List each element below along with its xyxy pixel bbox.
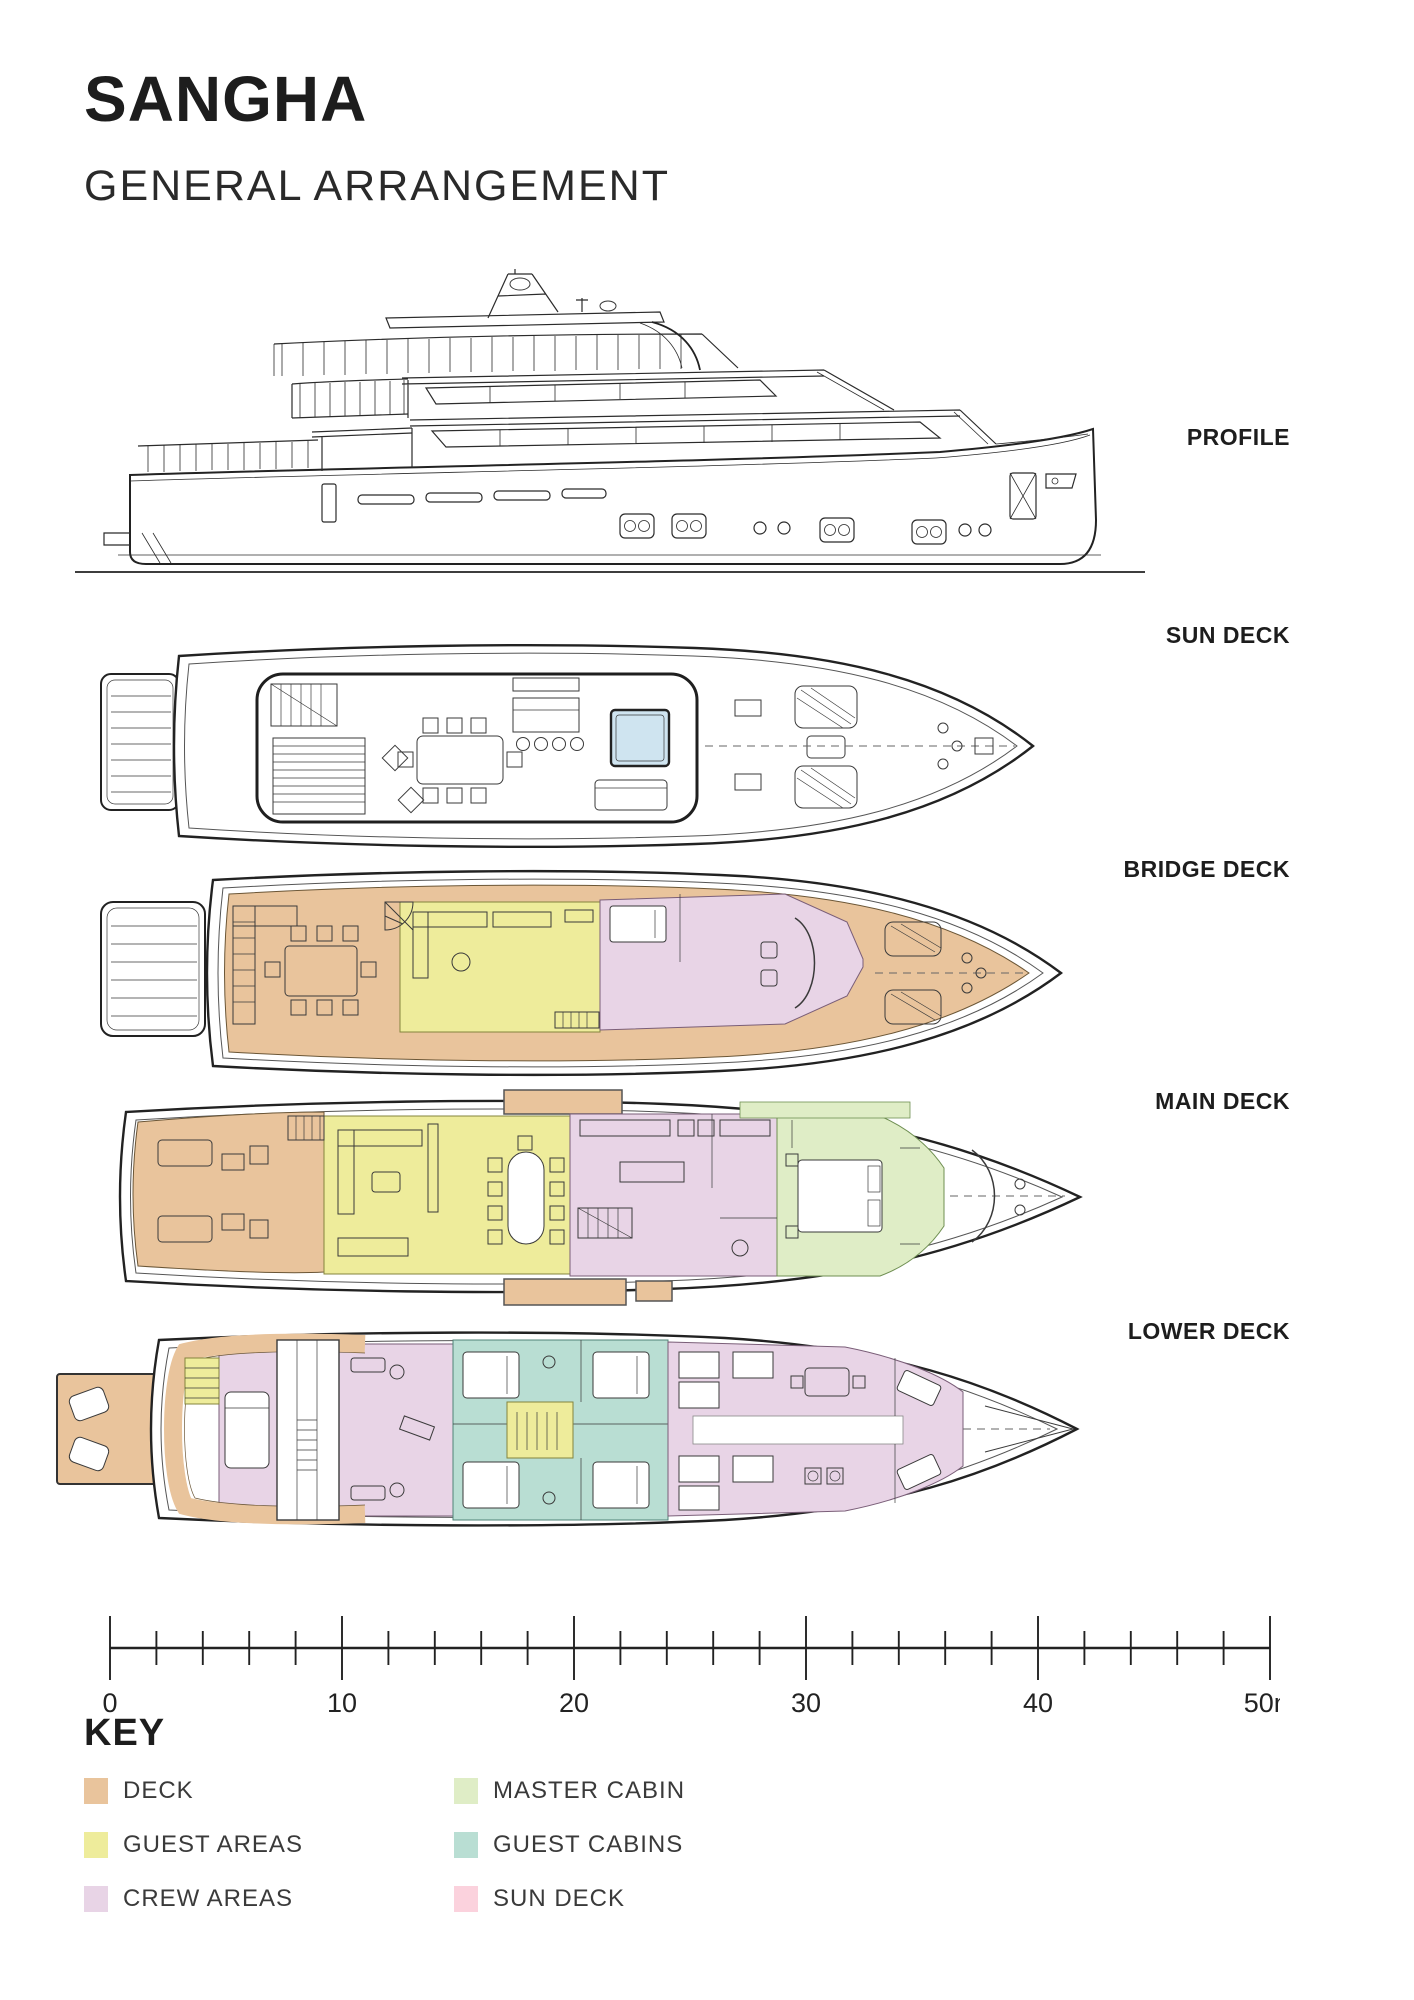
scale-tick-label: 20 [559, 1688, 589, 1718]
key-item-label: CREW AREAS [123, 1885, 293, 1913]
key-legend: DECK GUEST AREAS CREW AREAS MASTER CABIN… [84, 1778, 685, 1940]
main-deck-deck-zone [133, 1112, 324, 1273]
page-subtitle: GENERAL ARRANGEMENT [84, 162, 670, 211]
scale-ruler-svg: 01020304050m [100, 1608, 1280, 1723]
main-deck-crew-zone [570, 1114, 777, 1276]
key-swatch-deck [84, 1778, 108, 1804]
main-deck-view [80, 1088, 1095, 1323]
scale-tick-label: 30 [791, 1688, 821, 1718]
sun-deck-drawing [95, 640, 1085, 855]
bridge-deck-label: BRIDGE DECK [990, 856, 1290, 883]
key-item-label: SUN DECK [493, 1885, 625, 1913]
key-swatch-master-cabin [454, 1778, 478, 1804]
profile-label: PROFILE [990, 424, 1290, 451]
scale-tick-label: 10 [327, 1688, 357, 1718]
key-swatch-guest-cabins [454, 1832, 478, 1858]
lower-deck-drawing [45, 1328, 1110, 1568]
key-item-master-cabin: MASTER CABIN [454, 1778, 685, 1804]
key-swatch-guest-areas [84, 1832, 108, 1858]
scale-tick-label: 50m [1244, 1688, 1280, 1718]
ga-sheet: SANGHA GENERAL ARRANGEMENT [0, 0, 1414, 2000]
lower-deck-stair-box [185, 1358, 219, 1404]
sun-deck-label: SUN DECK [990, 622, 1290, 649]
sun-deck-view [95, 640, 1085, 855]
lower-deck-view [45, 1328, 1110, 1568]
key-item-deck: DECK [84, 1778, 344, 1804]
key-item-label: GUEST AREAS [123, 1831, 303, 1859]
key-item-guest-areas: GUEST AREAS [84, 1832, 344, 1858]
main-deck-balcony-starboard [504, 1279, 626, 1305]
key-item-label: DECK [123, 1777, 194, 1805]
key-item-crew-areas: CREW AREAS [84, 1886, 344, 1912]
page-title: SANGHA [84, 62, 367, 136]
key-swatch-crew-areas [84, 1886, 108, 1912]
lower-deck-swim-platform [57, 1374, 161, 1484]
main-deck-balcony-small [636, 1281, 672, 1301]
main-deck-master-strip [740, 1102, 910, 1118]
scale-tick-label: 40 [1023, 1688, 1053, 1718]
key-title: KEY [84, 1712, 165, 1755]
scale-bar: 01020304050m [100, 1608, 1280, 1723]
sun-deck-aft-platform [101, 674, 179, 810]
key-item-label: MASTER CABIN [493, 1777, 685, 1805]
bridge-deck-view [95, 866, 1095, 1086]
sun-deck-pool [611, 710, 669, 766]
key-swatch-sun-deck [454, 1886, 478, 1912]
key-item-sun-deck: SUN DECK [454, 1886, 685, 1912]
key-item-label: GUEST CABINS [493, 1831, 683, 1859]
lower-deck-label: LOWER DECK [990, 1318, 1290, 1345]
key-item-guest-cabins: GUEST CABINS [454, 1832, 685, 1858]
bridge-deck-drawing [95, 866, 1095, 1086]
main-deck-balcony-port [504, 1090, 622, 1114]
main-deck-label: MAIN DECK [990, 1088, 1290, 1115]
main-deck-drawing [80, 1088, 1095, 1323]
